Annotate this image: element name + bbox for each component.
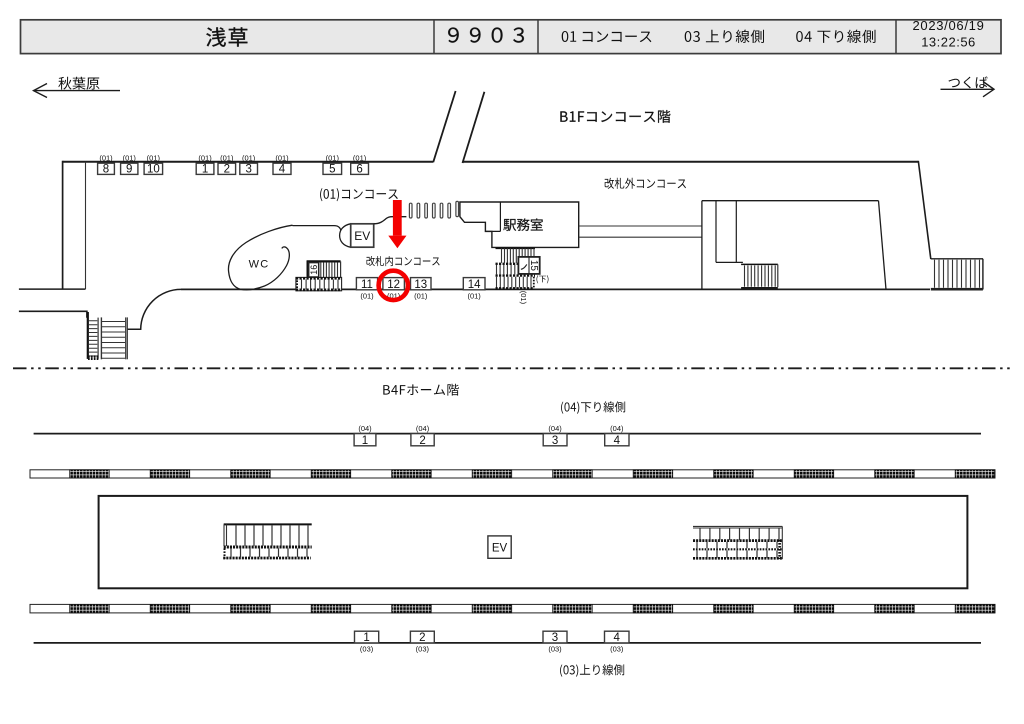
svg-text:(01): (01)	[198, 154, 212, 163]
svg-text:4: 4	[279, 164, 286, 176]
svg-text:14: 14	[468, 279, 481, 291]
svg-text:2: 2	[224, 164, 230, 176]
svg-text:(03): (03)	[548, 645, 562, 654]
svg-text:(01): (01)	[99, 154, 113, 163]
svg-text:1: 1	[202, 164, 208, 176]
svg-text:(04): (04)	[548, 424, 562, 433]
svg-text:(01): (01)	[220, 154, 234, 163]
svg-text:(04): (04)	[610, 424, 624, 433]
svg-text:(01): (01)	[519, 291, 528, 305]
svg-text:13:22:56: 13:22:56	[921, 35, 976, 50]
svg-text:10: 10	[147, 164, 160, 176]
svg-text:(03): (03)	[610, 645, 624, 654]
svg-text:2: 2	[419, 435, 425, 447]
svg-text:3: 3	[552, 435, 558, 447]
svg-text:(04): (04)	[358, 424, 372, 433]
svg-text:(01): (01)	[414, 291, 428, 300]
svg-text:(01): (01)	[467, 291, 481, 300]
svg-text:1: 1	[362, 435, 368, 447]
svg-text:EV: EV	[354, 229, 370, 243]
svg-text:11: 11	[361, 279, 373, 291]
svg-text:4: 4	[614, 435, 621, 447]
svg-text:(01): (01)	[123, 154, 137, 163]
svg-text:6: 6	[356, 164, 362, 176]
svg-text:1: 1	[363, 632, 369, 644]
svg-text:2023/06/19: 2023/06/19	[912, 18, 984, 33]
svg-text:(01): (01)	[360, 291, 374, 300]
svg-text:(03): (03)	[360, 645, 374, 654]
svg-text:(01): (01)	[275, 154, 289, 163]
svg-text:16: 16	[309, 265, 319, 275]
svg-text:(01): (01)	[242, 154, 256, 163]
svg-text:EV: EV	[492, 542, 508, 554]
svg-text:3: 3	[245, 164, 251, 176]
svg-text:3: 3	[552, 632, 558, 644]
svg-text:5: 5	[329, 164, 335, 176]
svg-text:15: 15	[528, 260, 539, 272]
svg-text:2: 2	[419, 632, 425, 644]
svg-text:12: 12	[387, 279, 400, 291]
svg-text:(03): (03)	[416, 645, 430, 654]
svg-text:(01): (01)	[326, 154, 340, 163]
svg-text:9: 9	[126, 164, 132, 176]
svg-text:(04): (04)	[416, 424, 430, 433]
svg-text:8: 8	[103, 164, 109, 176]
svg-text:(01): (01)	[147, 154, 161, 163]
svg-text:WC: WC	[249, 259, 270, 271]
svg-text:13: 13	[414, 279, 427, 291]
svg-text:(01): (01)	[353, 154, 367, 163]
svg-text:4: 4	[614, 632, 621, 644]
